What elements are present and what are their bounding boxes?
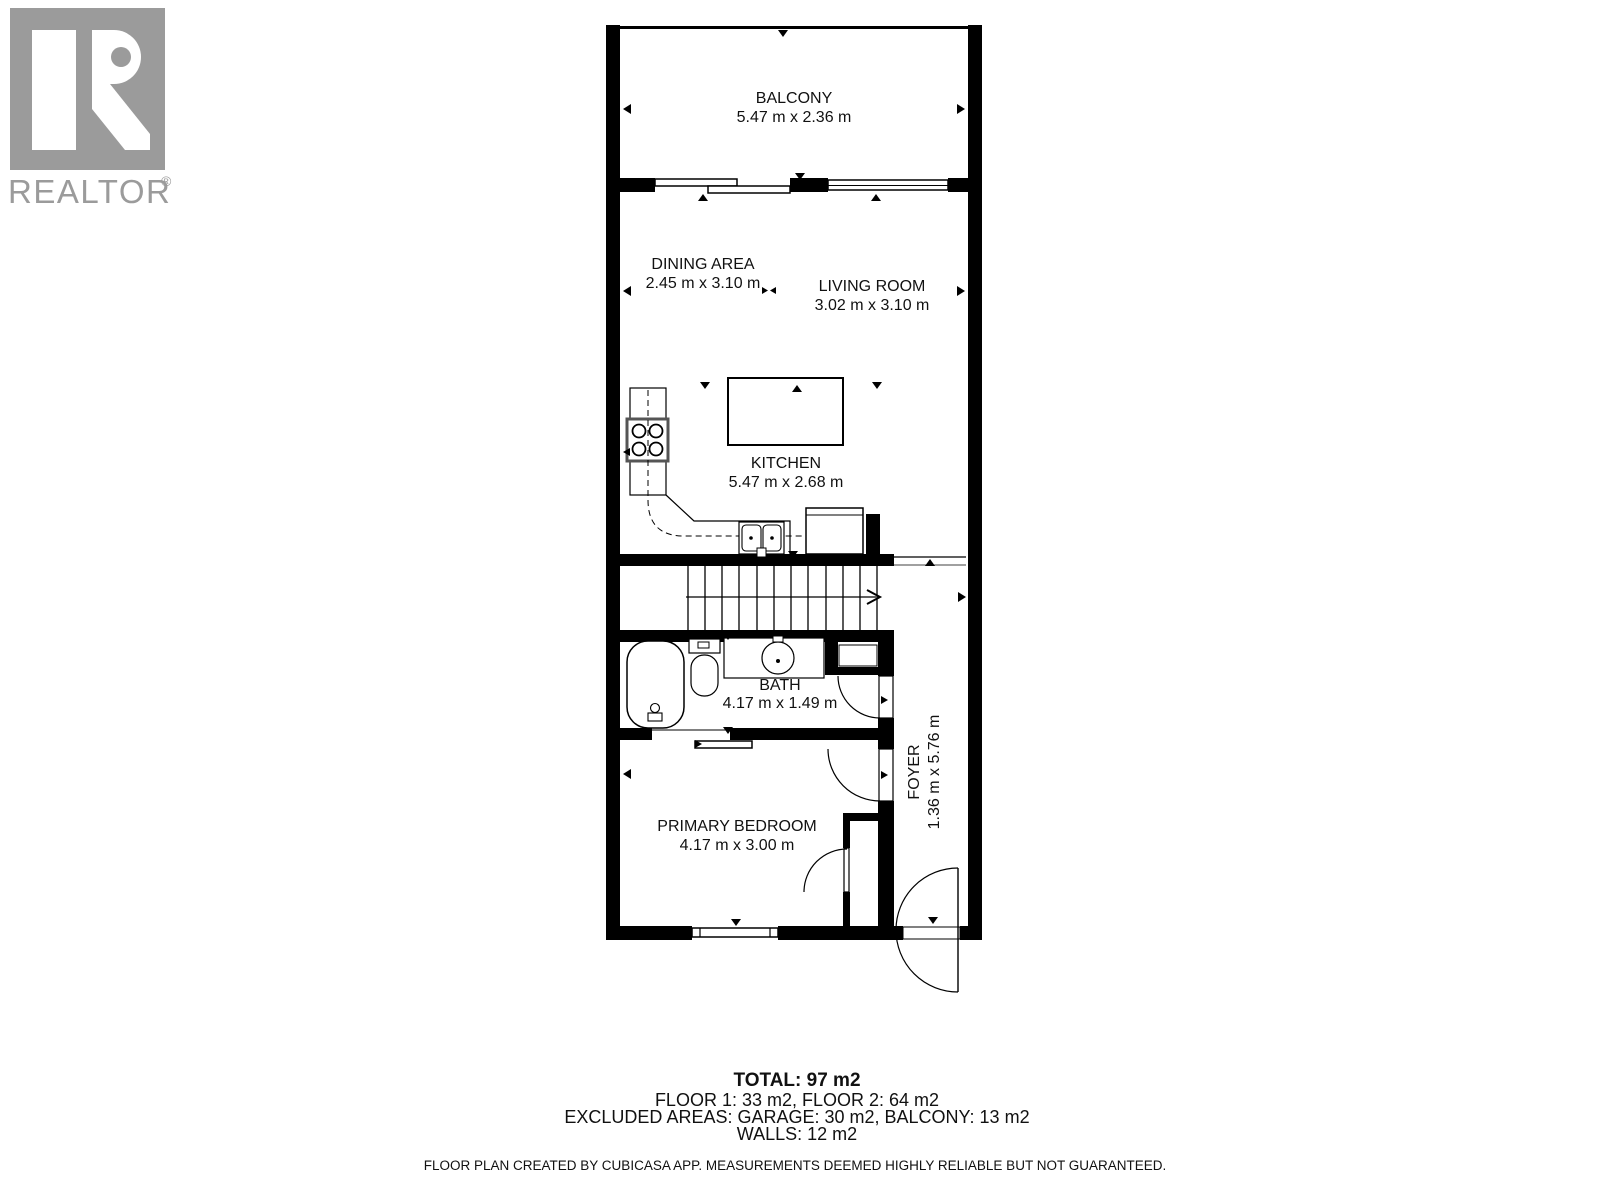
room-dims-foyer: 1.36 m x 5.76 m — [926, 715, 943, 830]
bathtub-faucet-base — [648, 713, 662, 721]
summary-total: TOTAL: 97 m2 — [733, 1070, 860, 1091]
bath-door-swing — [838, 676, 880, 718]
bath-sink-faucet — [773, 636, 783, 642]
balcony-sliding-door-pane — [708, 186, 790, 193]
closet-door-swing — [804, 849, 847, 892]
toilet-bowl — [691, 655, 718, 696]
bath-sink-drain — [776, 659, 780, 663]
registered-trademark-icon: ® — [161, 173, 172, 189]
realtor-wordmark: REALTOR — [8, 173, 171, 210]
room-dims-living-room: 3.02 m x 3.10 m — [815, 297, 930, 314]
stairs — [686, 566, 880, 630]
sink-drain — [770, 536, 774, 540]
room-dims-bath: 4.17 m x 1.49 m — [723, 695, 838, 712]
floor-plan: BALCONY 5.47 m x 2.36 m DINING AREA 2.45… — [606, 25, 982, 992]
realtor-r-bowl-hole — [111, 47, 131, 67]
stair-treads — [688, 566, 877, 630]
room-dims-primary-bedroom: 4.17 m x 3.00 m — [680, 837, 795, 854]
realtor-logo: REALTOR ® — [8, 8, 172, 210]
area-summary: TOTAL: 97 m2 FLOOR 1: 33 m2, FLOOR 2: 64… — [564, 1070, 1029, 1144]
room-label-foyer: FOYER — [906, 744, 923, 799]
room-label-dining-area: DINING AREA — [651, 256, 754, 273]
bath-vanity — [724, 638, 824, 678]
room-dims-dining-area: 2.45 m x 3.10 m — [646, 275, 761, 292]
room-label-bath: BATH — [759, 677, 800, 694]
kitchen-fixtures — [627, 378, 863, 557]
balcony-sliding-door — [655, 179, 737, 186]
bedroom-door-swing — [828, 749, 880, 801]
realtor-r-left-bar — [32, 30, 76, 150]
kitchen-island — [728, 378, 843, 445]
toilet-tank — [689, 639, 720, 653]
floor-plan-page: REALTOR ® — [0, 0, 1600, 1200]
room-label-primary-bedroom: PRIMARY BEDROOM — [657, 818, 816, 835]
bath-niche — [839, 645, 877, 666]
sink-drain — [749, 536, 753, 540]
bath-fixtures — [627, 636, 877, 728]
room-label-balcony: BALCONY — [756, 90, 833, 107]
closet-door-frame — [844, 848, 849, 892]
sink-faucet — [757, 548, 766, 557]
floor-plan-svg: REALTOR ® — [0, 0, 1600, 1200]
entry-door-threshold — [903, 927, 960, 939]
bath-sliding-door — [695, 741, 752, 748]
bedroom-window — [692, 928, 778, 937]
room-label-kitchen: KITCHEN — [751, 455, 821, 472]
room-dims-kitchen: 5.47 m x 2.68 m — [729, 474, 844, 491]
summary-walls: WALLS: 12 m2 — [737, 1124, 857, 1144]
room-label-living-room: LIVING ROOM — [819, 278, 926, 295]
footer-disclaimer: FLOOR PLAN CREATED BY CUBICASA APP. MEAS… — [424, 1158, 1166, 1173]
room-dims-balcony: 5.47 m x 2.36 m — [737, 109, 852, 126]
